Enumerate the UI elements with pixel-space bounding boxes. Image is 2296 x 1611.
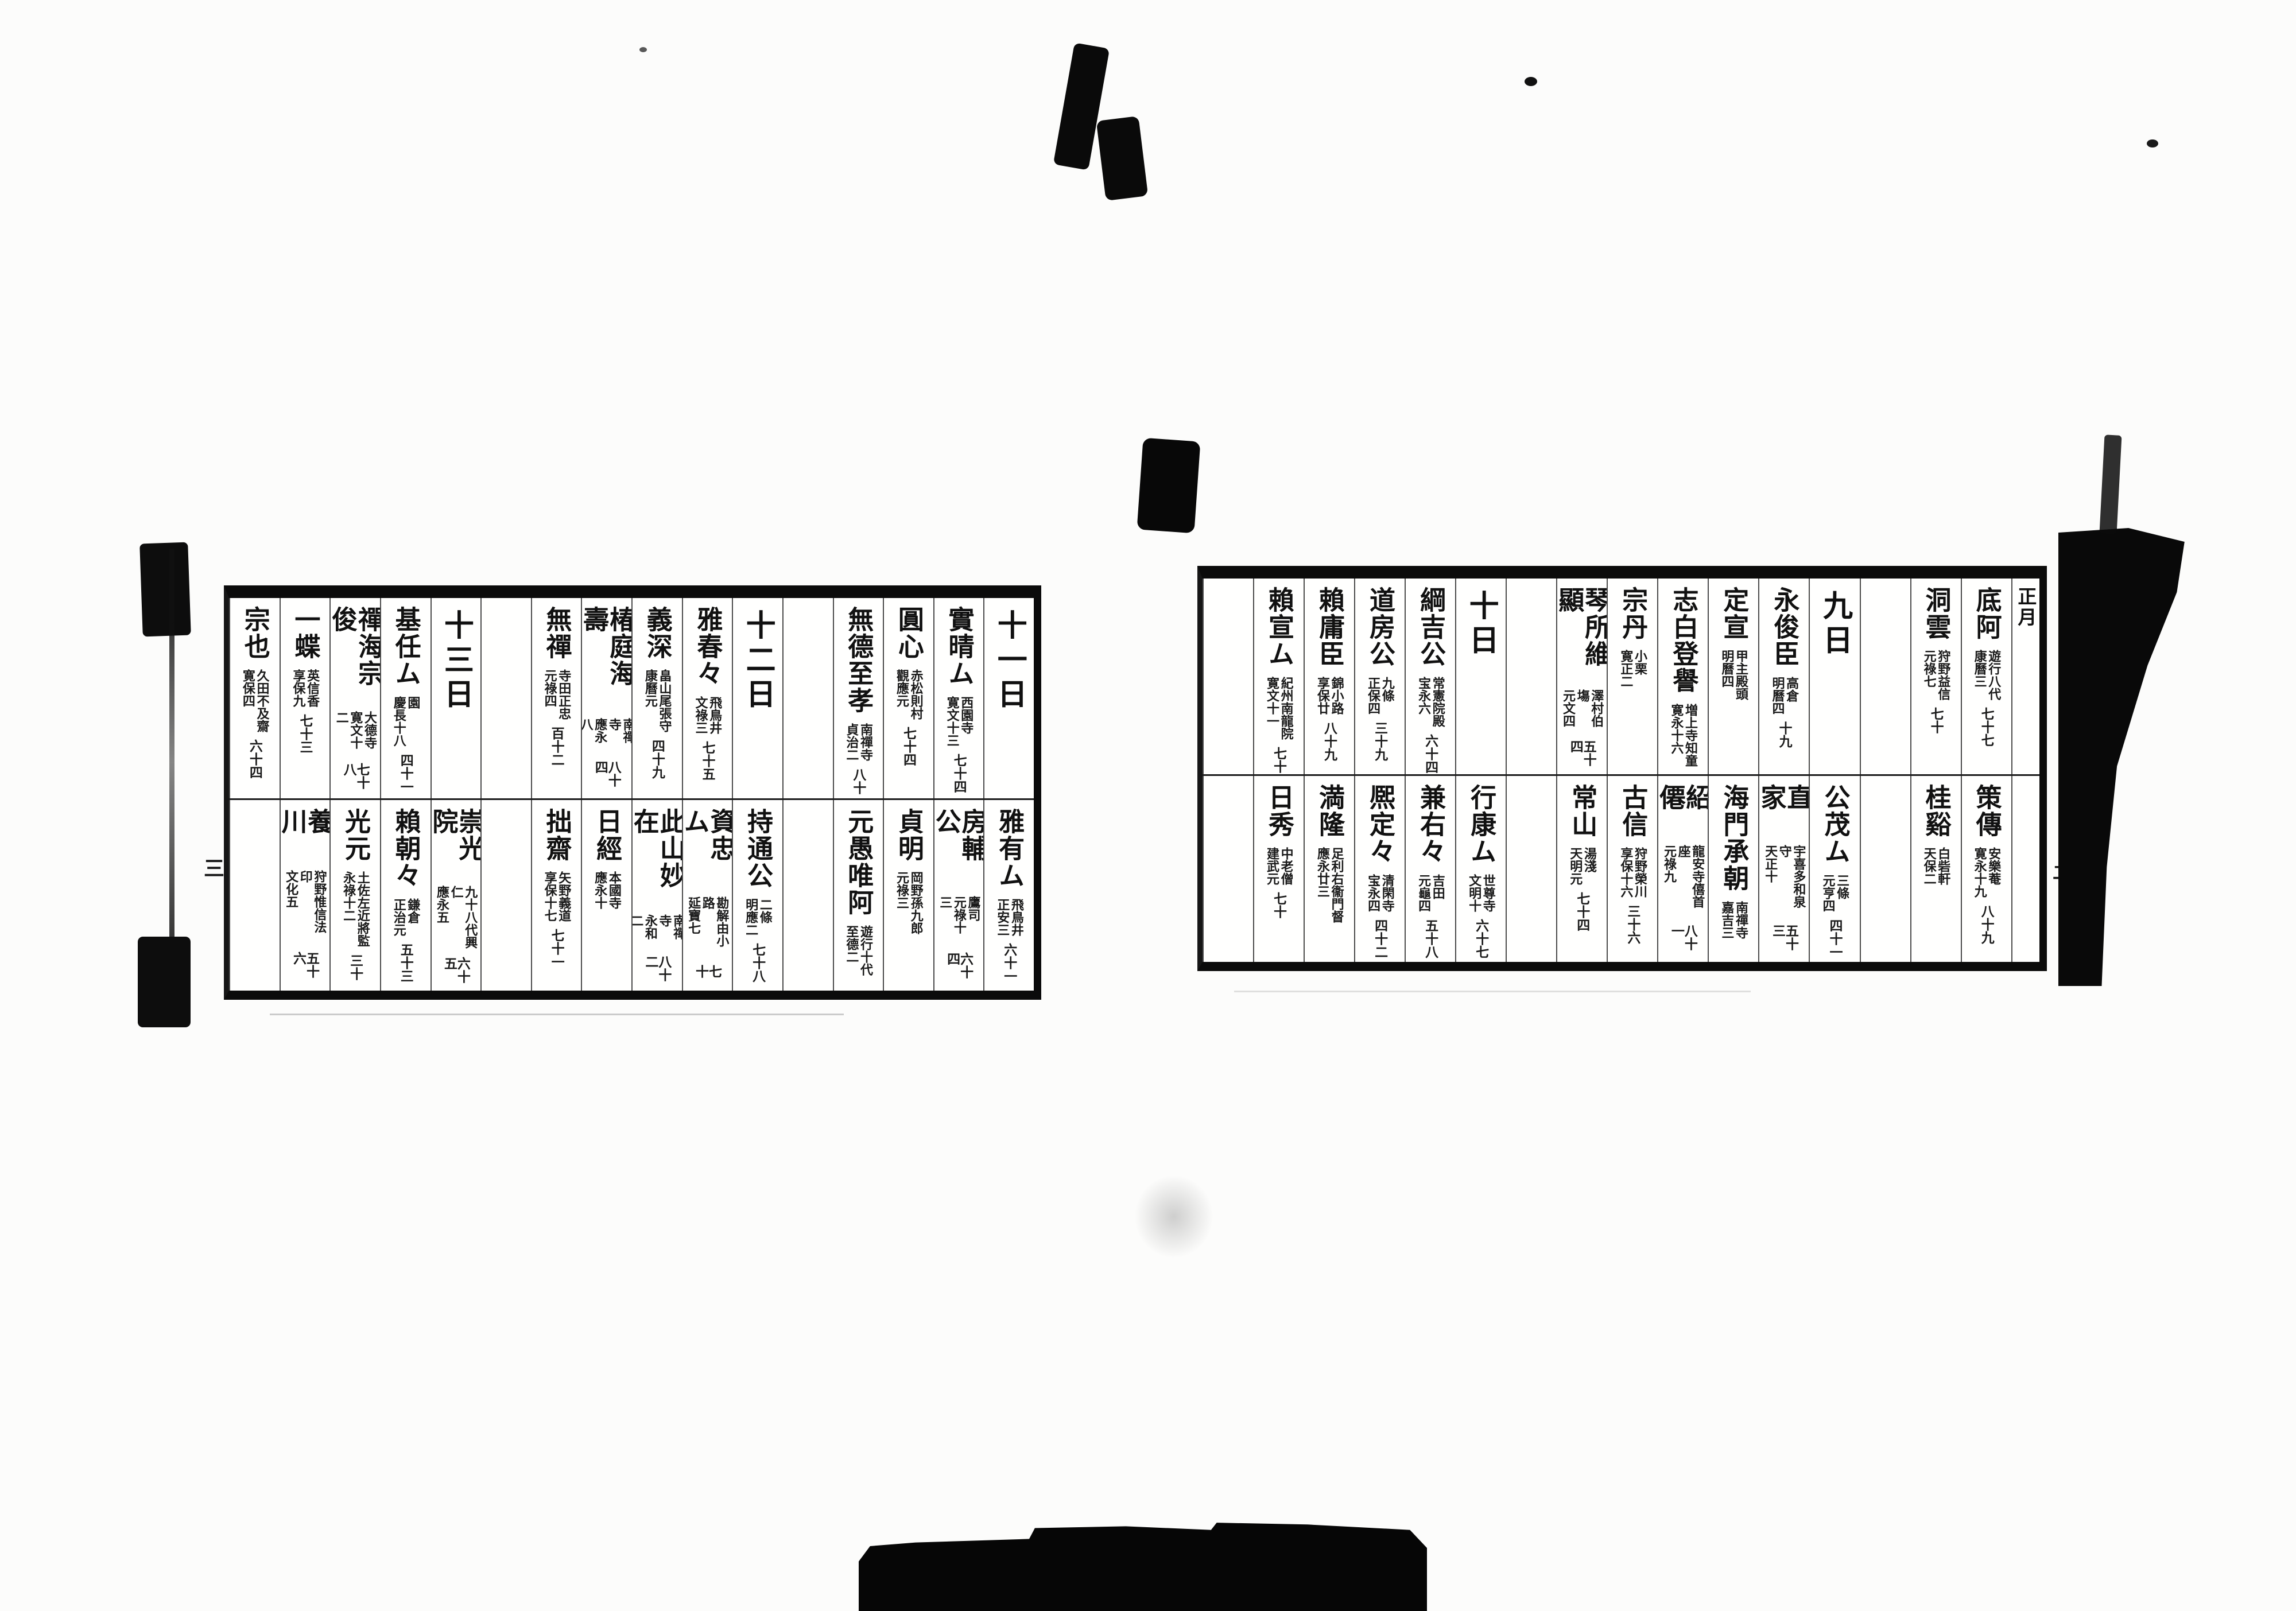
necrology-entry: 房輔公鷹司元祿十三六十四 <box>934 805 984 991</box>
annotation-line: 明曆四 <box>1720 650 1734 700</box>
entry-name: 雅有ム <box>996 808 1022 889</box>
text-column: 公茂ム三條元亨四四十一 <box>1809 776 1859 962</box>
necrology-entry: 満隆足利右衞門督應永廿三 <box>1305 781 1354 923</box>
annotation-line: 文祿三 <box>693 696 708 734</box>
text-column: 宗丹小栗寛正二 <box>1607 579 1657 774</box>
annotation-line: 三條 <box>1835 874 1849 912</box>
entry-age: 六十七 <box>1475 919 1488 958</box>
entry-age: 五十八 <box>1424 919 1437 958</box>
text-column <box>782 598 833 798</box>
annotation-line: 世尊寺 <box>1481 874 1495 912</box>
annotation-line: 元文四 <box>1561 689 1575 733</box>
annotation-line: 元祿九 <box>1662 845 1676 917</box>
annotation-line: 南禪寺 <box>858 723 872 761</box>
annotation-line: 遊行十代 <box>858 925 872 976</box>
necrology-entry: 雅有ム飛鳥井正安三六十一 <box>984 805 1034 983</box>
annotation-line: 天保二 <box>1922 847 1936 885</box>
text-column: 底阿遊行八代康曆三七十七 <box>1961 579 2011 774</box>
entry-age: 五十三 <box>1771 924 1797 962</box>
annotation-line: 九十八代興仁 <box>449 886 477 950</box>
text-column: 賴庸臣錦小路享保廿八十九 <box>1304 579 1354 774</box>
necrology-entry: 洞雲狩野益信元祿七七十 <box>1911 583 1961 733</box>
day-header: 十二日 <box>743 610 773 713</box>
annotation-line: 畠山尾張守 <box>657 669 672 732</box>
annotation-line: 享保廿 <box>1315 677 1329 715</box>
page-left-upper-register: 十一日實晴ム西園寺寛文十三七十四圓心赤松則村觀應元七十四無德至孝南禪寺貞治二八十… <box>229 598 1034 798</box>
text-column: 永俊臣高倉明曆四十九 <box>1758 579 1809 774</box>
entry-age: 八十九 <box>1980 905 1993 944</box>
text-column: 雅有ム飛鳥井正安三六十一 <box>983 800 1034 991</box>
annotation-line: 南禪寺 <box>1733 901 1748 939</box>
annotation-line: 天明元 <box>1568 847 1583 885</box>
text-column: 十二日 <box>732 598 782 798</box>
entry-name: 常山 <box>1569 784 1595 838</box>
entry-annotation: 中老僧建武元 <box>1265 847 1293 885</box>
page-right-frame: 正月底阿遊行八代康曆三七十七洞雲狩野益信元祿七七十九日永俊臣高倉明曆四十九定宣甲… <box>1197 566 2047 971</box>
entry-name: 直家 <box>1759 784 1809 836</box>
annotation-line: 文明十 <box>1467 874 1481 912</box>
book-scan: 正月底阿遊行八代康曆三七十七洞雲狩野益信元祿七七十九日永俊臣高倉明曆四十九定宣甲… <box>0 0 2296 1611</box>
entry-age: 五十三 <box>399 943 412 983</box>
text-column: 圓心赤松則村觀應元七十四 <box>883 598 933 798</box>
entry-annotation: 鷹司元祿十三 <box>938 896 980 945</box>
entry-annotation: 狩野惟信法印文化五 <box>284 870 327 945</box>
annotation-line: 寛文十三 <box>945 696 959 747</box>
entry-annotation: 赤松則村觀應元 <box>894 669 922 720</box>
annotation-line: 小栗 <box>1632 650 1647 688</box>
annotation-line: 狩野益信 <box>1936 650 1950 700</box>
binding-shadow-left-bottom <box>138 937 191 1027</box>
entry-name: 禪海宗俊 <box>331 606 380 702</box>
text-column: 賴宣ム紀州南龍院寛文十一七十 <box>1253 579 1304 774</box>
annotation-line: 寺田正忠 <box>557 669 571 720</box>
entry-age: 六十四 <box>248 739 261 779</box>
entry-name: 圓心 <box>895 606 922 660</box>
text-column: 宗也久田不及齋寛保四六十四 <box>229 598 280 798</box>
text-column: 洞雲狩野益信元祿七七十 <box>1910 579 1961 774</box>
day-header: 十三日 <box>441 610 471 713</box>
entry-annotation: 南禪寺嘉吉三 <box>1720 901 1748 939</box>
entry-age: 六十四 <box>1424 734 1437 774</box>
page-left: 十一日實晴ム西園寺寛文十三七十四圓心赤松則村觀應元七十四無德至孝南禪寺貞治二八十… <box>224 585 1041 1000</box>
entry-annotation: 足利右衞門督應永廿三 <box>1315 847 1343 923</box>
entry-annotation: 本國寺應永十 <box>593 871 621 909</box>
annotation-line: 吉田 <box>1430 874 1445 912</box>
entry-annotation: 狩野益信元祿七 <box>1922 650 1950 700</box>
annotation-line: 元祿三 <box>894 871 909 934</box>
ink-blot-fold-upper <box>1096 116 1149 201</box>
entry-name: 宗也 <box>242 606 268 660</box>
annotation-line: 鎌倉 <box>406 898 420 936</box>
entry-name: 此山妙在 <box>633 808 682 905</box>
necrology-entry: 一蝶英信香享保九七十三 <box>281 603 330 754</box>
page-right-lower-register: 策傳安樂菴寛永十九八十九桂谿白砦軒天保二公茂ム三條元亨四四十一直家宇喜多和泉守天… <box>1203 776 2039 962</box>
necrology-entry: 紹僊龍安寺僖首座元祿九八十一 <box>1658 781 1708 962</box>
entry-annotation: 常憲院殿宝永六 <box>1417 677 1445 727</box>
necrology-entry: 賴宣ム紀州南龍院寛文十一七十 <box>1254 583 1304 773</box>
fore-edge-streak-right <box>2100 434 2122 534</box>
annotation-line: 九條 <box>1380 677 1394 715</box>
entry-name: 日秀 <box>1266 784 1292 838</box>
entry-name: 無德至孝 <box>845 606 871 714</box>
entry-name: 琴所維顯 <box>1557 587 1607 680</box>
text-column: 紹僊龍安寺僖首座元祿九八十一 <box>1657 776 1708 962</box>
entry-age: 三十六 <box>1626 905 1639 944</box>
text-column <box>229 800 280 991</box>
ink-blot-fold-middle <box>1137 438 1201 534</box>
entry-age: 七十四 <box>902 727 915 766</box>
entry-name: 貞明 <box>895 808 922 862</box>
entry-age: 七十 <box>1272 747 1285 773</box>
annotation-line: 足利右衞門督 <box>1329 847 1344 923</box>
entry-age: 七十七 <box>1980 707 1993 747</box>
text-column <box>480 598 531 798</box>
entry-annotation: 英信香享保九 <box>291 669 319 707</box>
annotation-line: 正安三 <box>995 898 1010 936</box>
entry-age: 五十六 <box>292 952 318 991</box>
annotation-line: 寛正二 <box>1619 650 1633 688</box>
text-column <box>1203 579 1253 774</box>
entry-name: 兼右々 <box>1417 784 1444 865</box>
entry-annotation: 二條明應二 <box>743 898 771 936</box>
annotation-line: 至德二 <box>844 925 859 976</box>
entry-name: 房輔公 <box>934 808 984 887</box>
text-column: 貞明岡野孫九郎元祿三 <box>883 800 933 991</box>
entry-annotation: 南禪寺永和二 <box>633 914 682 948</box>
entry-age: 五十四 <box>1569 740 1595 774</box>
entry-name: 養川 <box>281 808 330 861</box>
entry-name: 古信 <box>1619 784 1646 838</box>
entry-name: 崇光院 <box>432 808 481 877</box>
annotation-line: 二條 <box>758 898 772 936</box>
text-column <box>480 800 531 991</box>
entry-name: 持通公 <box>744 808 771 889</box>
annotation-line: 甲主殿頭 <box>1733 650 1748 700</box>
entry-name: 行康ム <box>1468 784 1494 865</box>
entry-name: 底阿 <box>1973 587 2000 640</box>
entry-name: 宗丹 <box>1619 587 1646 640</box>
annotation-line: 觀應元 <box>894 669 909 720</box>
entry-annotation: 大德寺寛文十二 <box>334 711 377 756</box>
necrology-entry: 道房公九條正保四三十九 <box>1355 583 1405 761</box>
text-column: 賴朝々鎌倉正治元五十三 <box>380 800 430 991</box>
entry-annotation: 世尊寺文明十 <box>1467 874 1495 912</box>
annotation-line: 遊行八代 <box>1987 650 2001 700</box>
entry-annotation: 南禪寺應永八 <box>582 718 631 754</box>
binding-shadow-left-top <box>139 542 191 637</box>
necrology-entry: 元愚唯阿遊行十代至德二 <box>834 805 883 976</box>
annotation-line: 元祿七 <box>1922 650 1936 700</box>
text-column: 日秀中老僧建武元七十 <box>1253 776 1304 962</box>
necrology-entry: 圓心赤松則村觀應元七十四 <box>884 603 933 766</box>
entry-annotation: 南禪寺貞治二 <box>844 723 872 761</box>
annotation-line: 延寶七 <box>687 896 701 958</box>
entry-annotation: 鎌倉正治元 <box>391 898 420 936</box>
necrology-entry: 常山湯淺天明元七十四 <box>1557 781 1607 931</box>
text-column: 兼右々吉田元龜四五十八 <box>1405 776 1455 962</box>
text-column: 實晴ム西園寺寛文十三七十四 <box>933 598 984 798</box>
text-column: 満隆足利右衞門督應永廿三 <box>1304 776 1354 962</box>
annotation-line: 天正十 <box>1763 845 1778 917</box>
ink-speck <box>2147 139 2158 147</box>
entry-name: 賴庸臣 <box>1316 587 1343 667</box>
necrology-entry: 貞明岡野孫九郎元祿三 <box>884 805 933 934</box>
annotation-line: 宝永四 <box>1366 874 1380 912</box>
entry-age: 八十九 <box>1323 721 1336 761</box>
entry-age: 四十二 <box>1374 919 1387 958</box>
text-column: 熈定々清閑寺宝永四四十二 <box>1354 776 1405 962</box>
annotation-line: 園 <box>406 696 420 747</box>
text-column: 椿庭海壽南禪寺應永八八十四 <box>581 598 631 798</box>
entry-annotation: 岡野孫九郎元祿三 <box>894 871 922 934</box>
annotation-line: 元龜四 <box>1417 874 1431 912</box>
annotation-line: 慶長十八 <box>391 696 406 747</box>
entry-name: 志白登譽 <box>1670 587 1696 694</box>
entry-name: 日經 <box>594 808 620 862</box>
entry-name: 公茂ム <box>1822 784 1848 865</box>
annotation-line: 宝永六 <box>1417 677 1431 727</box>
entry-age: 三十九 <box>1374 721 1387 761</box>
necrology-entry: 海門承朝南禪寺嘉吉三 <box>1709 781 1758 939</box>
annotation-line: 土佐左近將監 <box>355 871 370 947</box>
necrology-entry: 無德至孝南禪寺貞治二八十 <box>834 603 883 794</box>
necrology-entry: 光元土佐左近將監永祿十二三十 <box>331 805 380 980</box>
text-column: 房輔公鷹司元祿十三六十四 <box>933 800 984 991</box>
annotation-line: 應永廿三 <box>1315 847 1329 923</box>
text-column <box>1203 776 1253 962</box>
annotation-line: 嘉吉三 <box>1720 901 1734 939</box>
necrology-entry: 賴朝々鎌倉正治元五十三 <box>381 805 430 983</box>
necrology-entry: 宗也久田不及齋寛保四六十四 <box>230 603 280 779</box>
text-column <box>1506 776 1556 962</box>
faint-rule-right-page <box>1234 991 1751 992</box>
necrology-entry: 資忠ム勘解由小路延寶七七十 <box>683 805 732 991</box>
entry-annotation: 白砦軒天保二 <box>1922 847 1950 885</box>
entry-age: 七十八 <box>342 763 369 798</box>
text-column: 崇光院九十八代興仁應永五六十五 <box>430 800 481 991</box>
page-right: 正月底阿遊行八代康曆三七十七洞雲狩野益信元祿七七十九日永俊臣高倉明曆四十九定宣甲… <box>1197 566 2047 971</box>
text-column: 志白登譽増上寺知童寛永十六 <box>1657 579 1708 774</box>
text-column: 基任ム園慶長十八四十一 <box>380 598 430 798</box>
entry-name: 拙齋 <box>544 808 570 862</box>
entry-annotation: 九十八代興仁應永五 <box>435 886 477 950</box>
entry-age: 七十五 <box>701 741 714 781</box>
text-column: 一蝶英信香享保九七十三 <box>280 598 330 798</box>
text-column: 元愚唯阿遊行十代至德二 <box>833 800 883 991</box>
annotation-line: 元祿十三 <box>938 896 966 945</box>
text-column: 持通公二條明應二七十八 <box>732 800 782 991</box>
entry-annotation: 甲主殿頭明曆四 <box>1720 650 1748 700</box>
page-right-upper-register: 正月底阿遊行八代康曆三七十七洞雲狩野益信元祿七七十九日永俊臣高倉明曆四十九定宣甲… <box>1203 579 2039 774</box>
text-column: 十三日 <box>430 598 481 798</box>
necrology-entry: 熈定々清閑寺宝永四四十二 <box>1355 781 1405 958</box>
necrology-entry: 永俊臣高倉明曆四十九 <box>1759 583 1809 748</box>
entry-annotation: 吉田元龜四 <box>1417 874 1445 912</box>
annotation-line: 寛永十六 <box>1669 704 1684 767</box>
entry-age: 七十八 <box>751 943 765 983</box>
entry-age: 十九 <box>1778 721 1791 748</box>
annotation-line: 赤松則村 <box>909 669 923 720</box>
text-column: 義深畠山尾張守康曆元四十九 <box>631 598 682 798</box>
entry-annotation: 飛鳥井正安三 <box>995 898 1023 936</box>
annotation-line: 享保十六 <box>1619 847 1633 898</box>
text-column <box>1506 579 1556 774</box>
entry-age: 百十二 <box>550 727 563 766</box>
annotation-line: 享保九 <box>291 669 305 707</box>
annotation-line: 清閑寺 <box>1380 874 1394 912</box>
fore-edge-shadow-right <box>2058 528 2186 986</box>
annotation-line: 元祿四 <box>542 669 557 720</box>
annotation-line: 白砦軒 <box>1936 847 1950 885</box>
annotation-line: 狩野惟信法印 <box>298 870 326 945</box>
text-column: 海門承朝南禪寺嘉吉三 <box>1708 776 1758 962</box>
entry-annotation: 澤村伯塲元文四 <box>1561 689 1603 733</box>
text-column: 光元土佐左近將監永祿十二三十 <box>329 800 380 991</box>
annotation-line: 久田不及齋 <box>255 669 269 732</box>
entry-age: 六十四 <box>946 952 972 991</box>
annotation-line: 鷹司 <box>966 896 980 945</box>
annotation-line: 大德寺 <box>362 711 377 756</box>
text-column: 直家宇喜多和泉守天正十五十三 <box>1758 776 1809 962</box>
entry-name: 満隆 <box>1316 784 1343 838</box>
entry-annotation: 遊行十代至德二 <box>844 925 872 976</box>
annotation-line: 南禪寺 <box>657 914 682 948</box>
necrology-entry: 實晴ム西園寺寛文十三七十四 <box>934 603 984 793</box>
text-column: 桂谿白砦軒天保二 <box>1910 776 1961 962</box>
annotation-line: 永祿十二 <box>341 871 355 947</box>
text-column: 常山湯淺天明元七十四 <box>1556 776 1607 962</box>
entry-name: 海門承朝 <box>1720 784 1747 892</box>
annotation-line: 高倉 <box>1784 677 1798 715</box>
entry-age: 六十一 <box>1003 943 1016 983</box>
necrology-entry: 養川狩野惟信法印文化五五十六 <box>281 805 330 991</box>
text-column: 養川狩野惟信法印文化五五十六 <box>280 800 330 991</box>
text-column <box>1860 579 1910 774</box>
annotation-line: 康曆三 <box>1972 650 1987 700</box>
necrology-entry: 底阿遊行八代康曆三七十七 <box>1962 583 2011 747</box>
entry-annotation: 園慶長十八 <box>391 696 420 747</box>
annotation-line: 錦小路 <box>1329 677 1344 715</box>
annotation-line: 享保十七 <box>542 871 557 922</box>
entry-age: 七十一 <box>550 929 563 968</box>
entry-annotation: 高倉明曆四 <box>1770 677 1798 715</box>
entry-annotation: 九條正保四 <box>1366 677 1394 715</box>
entry-name: 光元 <box>342 808 369 862</box>
necrology-entry: 賴庸臣錦小路享保廿八十九 <box>1305 583 1354 761</box>
annotation-line: 澤村伯塲 <box>1575 689 1603 733</box>
necrology-entry: 綱吉公常憲院殿宝永六六十四 <box>1406 583 1455 774</box>
entry-age: 七十三 <box>298 714 312 754</box>
annotation-line: 寛文十二 <box>334 711 362 756</box>
entry-annotation: 遊行八代康曆三 <box>1972 650 2000 700</box>
entry-annotation: 西園寺寛文十三 <box>945 696 973 747</box>
entry-annotation: 畠山尾張守康曆元 <box>643 669 671 732</box>
entry-age: 八十 <box>852 768 865 794</box>
text-column: 古信狩野榮川享保十六三十六 <box>1607 776 1657 962</box>
text-column: 雅春々飛鳥井文祿三七十五 <box>682 598 732 798</box>
gray-smudge <box>1119 1159 1228 1274</box>
text-column: 日經本國寺應永十 <box>581 800 631 991</box>
entry-name: 桂谿 <box>1923 784 1949 838</box>
text-column: 九日 <box>1809 579 1859 774</box>
day-header: 九日 <box>1820 590 1850 659</box>
text-column <box>782 800 833 991</box>
annotation-line: 西園寺 <box>959 696 974 747</box>
necrology-entry: 志白登譽増上寺知童寛永十六 <box>1658 583 1708 767</box>
annotation-line: 正治元 <box>391 898 406 936</box>
text-column: 定宣甲主殿頭明曆四 <box>1708 579 1758 774</box>
annotation-line: 貞治二 <box>844 723 859 761</box>
annotation-line: 増上寺知童 <box>1683 704 1697 767</box>
entry-name: 永俊臣 <box>1771 587 1798 667</box>
necrology-entry: 公茂ム三條元亨四四十一 <box>1810 781 1859 958</box>
entry-name: 賴朝々 <box>393 808 419 889</box>
entry-age: 七十四 <box>952 754 965 793</box>
annotation-line: 寛文十一 <box>1265 677 1279 740</box>
entry-age: 四十一 <box>399 754 412 793</box>
annotation-line: 宇喜多和泉守 <box>1777 845 1805 917</box>
text-column: 拙齋矢野義道享保十七七十一 <box>531 800 581 991</box>
entry-annotation: 錦小路享保廿 <box>1315 677 1343 715</box>
annotation-line: 勘解由小路 <box>700 896 728 958</box>
entry-annotation: 狩野榮川享保十六 <box>1619 847 1647 898</box>
annotation-line: 康曆元 <box>643 669 657 732</box>
necrology-entry: 定宣甲主殿頭明曆四 <box>1709 583 1758 700</box>
necrology-entry: 此山妙在南禪寺永和二八十二 <box>633 805 682 991</box>
entry-annotation: 勘解由小路延寶七 <box>687 896 729 958</box>
text-column <box>1860 776 1910 962</box>
text-column: 十日 <box>1455 579 1506 774</box>
annotation-line: 岡野孫九郎 <box>909 871 923 934</box>
day-header: 十日 <box>1466 590 1496 659</box>
entry-age: 七十 <box>1929 707 1942 733</box>
annotation-line: 飛鳥井 <box>707 696 722 734</box>
entry-annotation: 久田不及齋寛保四 <box>241 669 269 732</box>
entry-age: 六十五 <box>443 957 469 991</box>
entry-age: 七十四 <box>1576 892 1589 931</box>
annotation-line: 寛永十九 <box>1972 847 1987 898</box>
text-column <box>2011 776 2039 962</box>
text-column: 行康ム世尊寺文明十六十七 <box>1455 776 1506 962</box>
text-column: 禪海宗俊大德寺寛文十二七十八 <box>329 598 380 798</box>
annotation-line: 英信香 <box>305 669 319 707</box>
annotation-line: 寛保四 <box>241 669 255 732</box>
entry-name: 一蝶 <box>292 606 318 660</box>
necrology-entry: 椿庭海壽南禪寺應永八八十四 <box>582 603 631 798</box>
annotation-line: 應永八 <box>582 718 607 754</box>
annotation-line: 明應二 <box>743 898 758 936</box>
page-left-frame: 十一日實晴ム西園寺寛文十三七十四圓心赤松則村觀應元七十四無德至孝南禪寺貞治二八十… <box>224 585 1041 1000</box>
annotation-line: 應永五 <box>435 886 449 950</box>
entry-name: 定宣 <box>1720 587 1747 640</box>
scanner-black-band-bottom <box>859 1521 1427 1611</box>
annotation-line: 中老僧 <box>1279 847 1293 885</box>
entry-name: 基任ム <box>393 606 419 687</box>
annotation-line: 安樂菴 <box>1987 847 2001 898</box>
text-column: 無禪寺田正忠元祿四百十二 <box>531 598 581 798</box>
annotation-line: 常憲院殿 <box>1430 677 1445 727</box>
necrology-entry: 無禪寺田正忠元祿四百十二 <box>532 603 581 766</box>
text-column: 十一日 <box>983 598 1034 798</box>
entry-annotation: 安樂菴寛永十九 <box>1972 847 2000 898</box>
entry-annotation: 龍安寺僖首座元祿九 <box>1662 845 1704 917</box>
annotation-line: 飛鳥井 <box>1009 898 1023 936</box>
entry-name: 道房公 <box>1367 587 1393 667</box>
necrology-entry: 持通公二條明應二七十八 <box>733 805 782 983</box>
text-column: 正月 <box>2011 579 2039 774</box>
text-column: 無德至孝南禪寺貞治二八十 <box>833 598 883 798</box>
entry-name: 義深 <box>644 606 670 660</box>
